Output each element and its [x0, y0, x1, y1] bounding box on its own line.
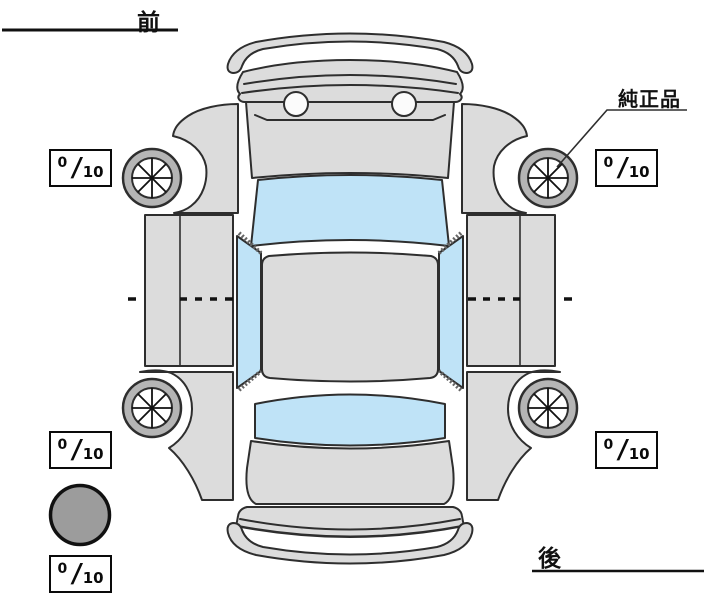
spare-tire-icon: [51, 486, 110, 545]
side-window-left: [237, 236, 261, 388]
tread-numerator: 0: [603, 155, 613, 171]
door-panel-right: [467, 215, 555, 366]
windshield: [251, 175, 449, 246]
front-bumper: [237, 60, 462, 102]
tread-numerator: 0: [57, 437, 67, 453]
tread-numerator: 0: [57, 155, 67, 171]
tread-denominator: 10: [629, 445, 650, 463]
tread-numerator: 0: [57, 561, 67, 577]
fraction-slash: /: [70, 561, 83, 587]
hood: [246, 102, 454, 178]
tread-score-box-rear-right: 0/10: [595, 431, 658, 469]
tread-score-box-spare: 0/10: [49, 555, 112, 593]
fender-front-left: [173, 104, 238, 213]
fraction-slash: /: [616, 155, 629, 181]
tread-denominator: 10: [83, 163, 104, 181]
wheel-rear-left-icon: [123, 379, 181, 437]
car-top-view-diagram: [0, 0, 711, 600]
fender-front-right: [462, 104, 527, 213]
trunk: [246, 441, 453, 504]
rear-bumper: [236, 507, 464, 537]
headlight-right-icon: [392, 92, 416, 116]
tread-denominator: 10: [83, 569, 104, 587]
rear-label: 後: [538, 539, 562, 573]
rear-window: [255, 395, 445, 446]
tread-score-box-front-right: 0/10: [595, 149, 658, 187]
wheel-rear-right-icon: [519, 379, 577, 437]
tread-numerator: 0: [603, 437, 613, 453]
tread-score-box-front-left: 0/10: [49, 149, 112, 187]
tread-denominator: 10: [83, 445, 104, 463]
vehicle-inspection-diagram: 前 後 純正品 0/10 0/10 0/10 0/10 0/10: [0, 0, 711, 600]
headlight-left-icon: [284, 92, 308, 116]
roof: [262, 253, 438, 382]
fraction-slash: /: [616, 437, 629, 463]
fraction-slash: /: [70, 155, 83, 181]
front-label: 前: [137, 3, 161, 37]
car-body: [140, 34, 560, 564]
wheel-front-right-icon: [519, 149, 577, 207]
tread-score-box-rear-left: 0/10: [49, 431, 112, 469]
genuine-part-label: 純正品: [618, 83, 681, 112]
wheel-front-left-icon: [123, 149, 181, 207]
side-window-right: [439, 236, 463, 388]
tread-denominator: 10: [629, 163, 650, 181]
door-panel-left: [145, 215, 233, 366]
fraction-slash: /: [70, 437, 83, 463]
